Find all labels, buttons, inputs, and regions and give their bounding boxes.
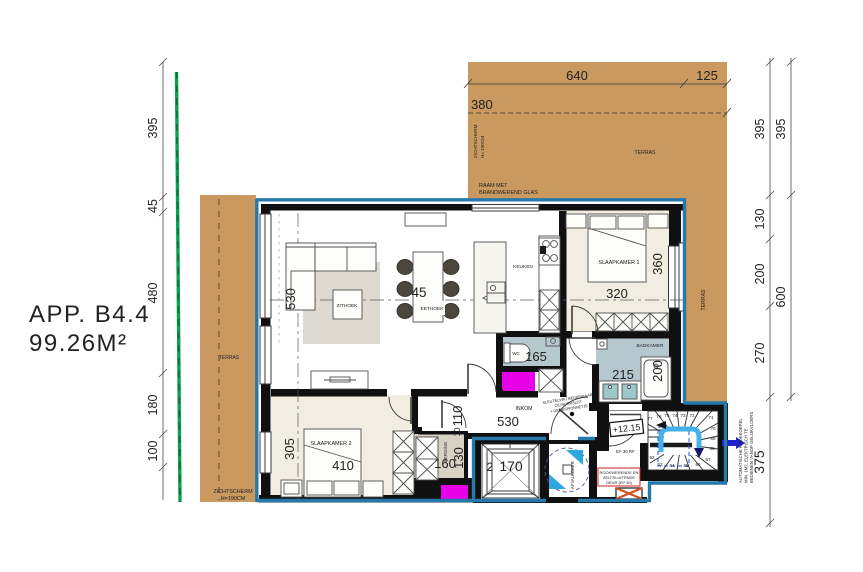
svg-text:ZITHOEK: ZITHOEK — [337, 303, 359, 309]
svg-text:77: 77 — [647, 416, 653, 421]
svg-text:305: 305 — [282, 438, 297, 460]
svg-text:170: 170 — [499, 458, 523, 474]
svg-text:165: 165 — [525, 349, 547, 364]
svg-text:INKOM: INKOM — [515, 406, 532, 412]
svg-text:66: 66 — [695, 462, 701, 467]
svg-text:H= 190CM: H= 190CM — [480, 136, 485, 158]
svg-text:BADKAMER: BADKAMER — [637, 343, 664, 349]
svg-text:H=190CM: H=190CM — [221, 496, 246, 502]
svg-text:76: 76 — [656, 414, 662, 419]
svg-text:200: 200 — [753, 264, 767, 285]
svg-text:395: 395 — [146, 118, 160, 139]
svg-text:45: 45 — [146, 199, 160, 213]
svg-text:2: 2 — [487, 460, 494, 474]
svg-text:63: 63 — [657, 462, 663, 467]
svg-text:215: 215 — [612, 367, 634, 382]
svg-text:KEUKEN: KEUKEN — [513, 264, 533, 270]
svg-text:SLAAPKAMER 1: SLAAPKAMER 1 — [598, 260, 639, 266]
svg-text:320: 320 — [606, 286, 628, 301]
svg-text:AFVALKOKER: AFVALKOKER — [570, 461, 575, 489]
svg-text:74: 74 — [672, 413, 678, 418]
svg-text:WC: WC — [512, 351, 519, 356]
svg-text:TERRAS: TERRAS — [701, 289, 707, 311]
svg-text:530: 530 — [497, 414, 519, 429]
svg-text:395: 395 — [774, 119, 788, 140]
svg-text:73: 73 — [680, 413, 686, 418]
svg-text:BRANDWEREND GLAS: BRANDWEREND GLAS — [479, 190, 538, 196]
svg-text:200: 200 — [650, 360, 665, 382]
svg-text:71: 71 — [708, 415, 714, 420]
svg-text:530: 530 — [283, 288, 298, 310]
svg-text:EETHOEK: EETHOEK — [421, 306, 445, 312]
svg-text:125: 125 — [696, 68, 718, 83]
svg-text:270: 270 — [753, 343, 767, 364]
svg-text:180: 180 — [146, 395, 160, 416]
svg-text:TERRAS: TERRAS — [219, 355, 240, 361]
svg-text:67: 67 — [705, 457, 711, 462]
svg-text:72: 72 — [689, 413, 695, 418]
svg-text:69: 69 — [710, 436, 716, 441]
svg-text:100: 100 — [146, 441, 160, 462]
svg-text:130: 130 — [753, 209, 767, 230]
svg-text:360: 360 — [650, 253, 665, 275]
svg-text:45: 45 — [411, 285, 426, 300]
svg-text:75: 75 — [664, 413, 670, 418]
svg-text:SLAAPKAMER 2: SLAAPKAMER 2 — [310, 441, 351, 447]
svg-text:130: 130 — [451, 447, 466, 469]
svg-text:TERRAS: TERRAS — [634, 150, 656, 156]
svg-text:640: 640 — [566, 68, 588, 83]
svg-text:10: 10 — [453, 427, 462, 436]
svg-text:99.26M²: 99.26M² — [29, 330, 128, 357]
svg-text:62: 62 — [649, 455, 655, 460]
svg-text:70: 70 — [710, 426, 716, 431]
svg-text:395: 395 — [753, 119, 767, 140]
svg-text:BEDIENEN VANOP GELIJKVLOERS: BEDIENEN VANOP GELIJKVLOERS — [749, 412, 754, 483]
svg-text:65: 65 — [683, 463, 689, 468]
svg-text:EI¹ 30 RF: EI¹ 30 RF — [616, 449, 635, 454]
svg-text:380: 380 — [471, 97, 493, 112]
svg-text:ZICHTSCHERM: ZICHTSCHERM — [473, 124, 478, 158]
svg-text:APP. B4.4: APP. B4.4 — [29, 301, 150, 328]
svg-text:600: 600 — [774, 287, 788, 308]
svg-text:410: 410 — [332, 458, 354, 473]
svg-text:64: 64 — [669, 463, 675, 468]
svg-text:ZICHTSCHERM: ZICHTSCHERM — [213, 489, 253, 495]
svg-text:RAAM MET: RAAM MET — [479, 183, 508, 189]
svg-text:68: 68 — [709, 446, 715, 451]
svg-text:MIN. 1M2, ELEKTRISCH TE: MIN. 1M2, ELEKTRISCH TE — [744, 428, 749, 483]
svg-text:110: 110 — [450, 406, 465, 427]
svg-text:DEUR (EI¹ 30): DEUR (EI¹ 30) — [606, 480, 632, 485]
svg-text:AUTOMATISCHE ROOKKOEPEL: AUTOMATISCHE ROOKKOEPEL — [738, 418, 743, 483]
